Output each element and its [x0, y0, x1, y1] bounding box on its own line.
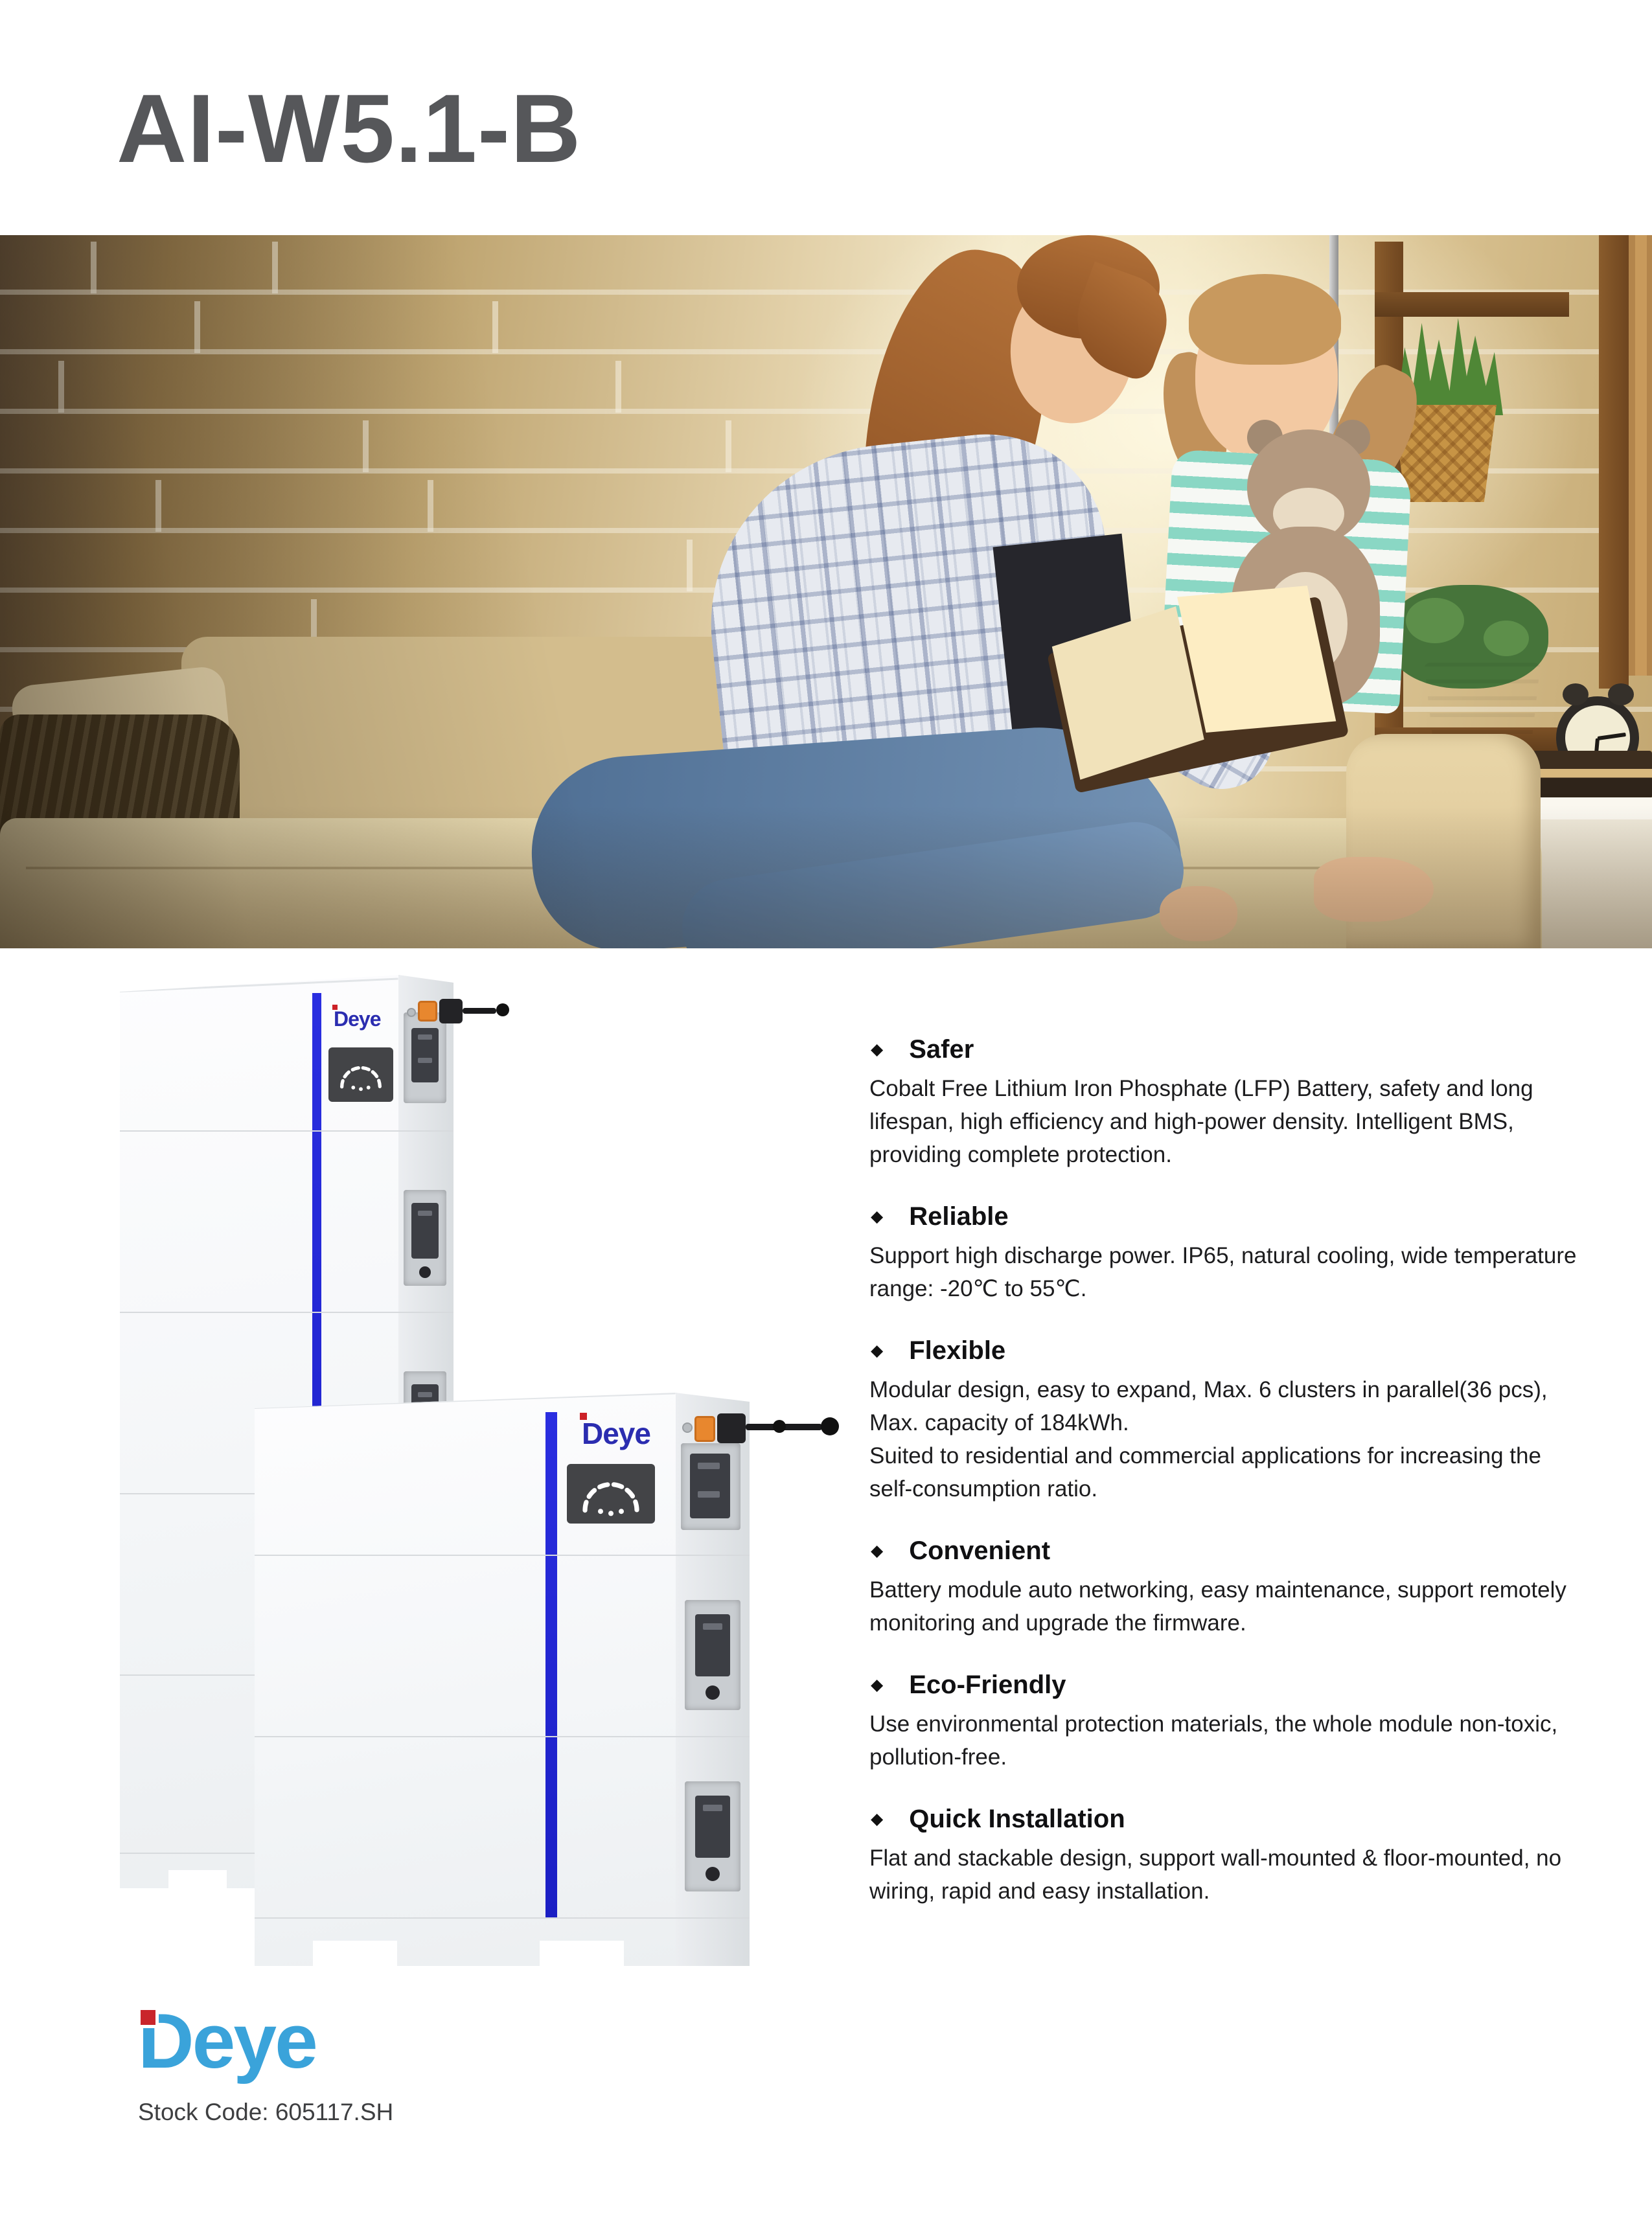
breaker-slot [698, 1463, 720, 1469]
tower-logo-text: Deye [582, 1417, 650, 1450]
diamond-bullet-icon: ◆ [871, 1343, 883, 1359]
brick-joint [58, 361, 64, 413]
brick-joint [428, 480, 433, 532]
deye-logo-text: Deye [138, 1998, 316, 2084]
feature-body: Use environmental protection materials, … [869, 1707, 1581, 1774]
breaker-slot [703, 1623, 722, 1630]
module-seam [120, 1130, 453, 1132]
port-dot [706, 1685, 720, 1700]
feature-title: Convenient [909, 1536, 1050, 1566]
side-recess [685, 1600, 740, 1710]
feature-body: Modular design, easy to expand, Max. 6 c… [869, 1373, 1581, 1439]
foot-notch [540, 1941, 624, 1966]
brick-joint [492, 301, 498, 353]
deye-logo: Deye [138, 1998, 316, 2084]
breaker [695, 1614, 730, 1676]
brick-joint [272, 242, 278, 293]
feature-title: Safer [909, 1035, 974, 1064]
feature-eco-friendly: ◆ Eco-Friendly Use environmental protect… [869, 1671, 1581, 1774]
feature-title: Reliable [909, 1202, 1008, 1231]
foot-notch [313, 1941, 397, 1966]
page-title: AI-W5.1-B [117, 73, 581, 185]
breaker-slot [418, 1392, 432, 1397]
base-seam [255, 1917, 750, 1919]
screw-icon [682, 1422, 693, 1433]
breaker [411, 1203, 439, 1259]
foot-notch [168, 1870, 227, 1888]
screw-icon [407, 1008, 416, 1017]
cable [463, 1008, 496, 1014]
cable-end-knob [821, 1417, 839, 1435]
feature-title: Quick Installation [909, 1805, 1125, 1834]
status-display [567, 1464, 655, 1524]
breaker-slot [418, 1211, 432, 1216]
child-hair [1189, 274, 1341, 365]
stock-code: Stock Code: 605117.SH [138, 2099, 393, 2126]
black-connector [717, 1413, 746, 1443]
mother-foot [1314, 857, 1434, 922]
module-seam [255, 1736, 750, 1737]
black-connector [439, 999, 463, 1023]
feature-title: Eco-Friendly [909, 1671, 1066, 1700]
diamond-bullet-icon: ◆ [871, 1543, 883, 1559]
power-connectors-back [407, 996, 517, 1038]
tower-logo: Deye [582, 1419, 650, 1448]
brick-joint [615, 361, 621, 413]
module-seam [255, 1555, 750, 1556]
diamond-bullet-icon: ◆ [871, 1677, 883, 1693]
orange-connector [694, 1416, 715, 1442]
feature-body: Suited to residential and commercial app… [869, 1439, 1581, 1505]
orange-connector [418, 1001, 437, 1022]
feature-reliable: ◆ Reliable Support high discharge power.… [869, 1202, 1581, 1305]
side-recess [685, 1781, 740, 1891]
diamond-bullet-icon: ◆ [871, 1209, 883, 1225]
datasheet-page: AI-W5.1-B [0, 0, 1652, 2227]
breaker [690, 1454, 730, 1518]
tower-logo: Deye [334, 1009, 381, 1029]
foliage-highlight [1484, 621, 1529, 656]
diamond-bullet-icon: ◆ [871, 1811, 883, 1827]
foliage-highlight [1406, 598, 1464, 643]
brick-joint [91, 242, 97, 293]
feature-body: Cobalt Free Lithium Iron Phosphate (LFP)… [869, 1072, 1581, 1171]
mother-hand [1160, 886, 1237, 941]
module-seam [120, 1312, 453, 1313]
feature-quick-installation: ◆ Quick Installation Flat and stackable … [869, 1805, 1581, 1908]
hero-photo [0, 235, 1652, 948]
breaker-slot [703, 1805, 722, 1811]
feature-heading: ◆ Quick Installation [871, 1805, 1581, 1834]
diamond-bullet-icon: ◆ [871, 1042, 883, 1058]
ladder-shelf-beam [1599, 235, 1629, 689]
blue-stripe [545, 1412, 557, 1917]
breaker-slot [698, 1491, 720, 1498]
logo-red-dot [332, 1005, 338, 1010]
status-display [328, 1047, 393, 1102]
feature-body: Battery module auto networking, easy mai… [869, 1573, 1581, 1639]
power-connectors-front [682, 1410, 844, 1455]
side-recess [404, 1190, 446, 1286]
battery-tower-front: Deye [255, 1393, 750, 1966]
logo-red-dot [580, 1413, 587, 1420]
brick-joint [155, 480, 161, 532]
cable-knob [773, 1420, 786, 1433]
brick-joint [363, 420, 369, 472]
feature-title: Flexible [909, 1336, 1005, 1365]
feature-heading: ◆ Eco-Friendly [871, 1671, 1581, 1700]
feature-list: ◆ Safer Cobalt Free Lithium Iron Phospha… [869, 1035, 1581, 1939]
clock-bell [1563, 683, 1589, 705]
feature-convenient: ◆ Convenient Battery module auto network… [869, 1536, 1581, 1639]
brick-joint [726, 420, 731, 472]
clock-bell [1608, 683, 1634, 705]
feature-body: Support high discharge power. IP65, natu… [869, 1239, 1581, 1305]
brick-joint [687, 540, 693, 591]
port-dot [419, 1266, 431, 1278]
gauge-icon [332, 1051, 389, 1098]
breaker-slot [418, 1058, 432, 1063]
port-dot [706, 1867, 720, 1881]
feature-heading: ◆ Convenient [871, 1536, 1581, 1566]
cable-knob [496, 1003, 509, 1016]
feature-heading: ◆ Safer [871, 1035, 1581, 1064]
gauge-icon [571, 1468, 651, 1520]
ladder-shelf-rung [1375, 292, 1569, 317]
feature-heading: ◆ Flexible [871, 1336, 1581, 1365]
feature-body: Flat and stackable design, support wall-… [869, 1842, 1581, 1908]
brick-joint [194, 301, 200, 353]
breaker [695, 1796, 730, 1858]
feature-flexible: ◆ Flexible Modular design, easy to expan… [869, 1336, 1581, 1505]
side-recess [681, 1443, 740, 1530]
tower-logo-text: Deye [334, 1007, 381, 1031]
deye-logo-red-square [141, 2010, 155, 2025]
feature-safer: ◆ Safer Cobalt Free Lithium Iron Phospha… [869, 1035, 1581, 1171]
feature-heading: ◆ Reliable [871, 1202, 1581, 1231]
